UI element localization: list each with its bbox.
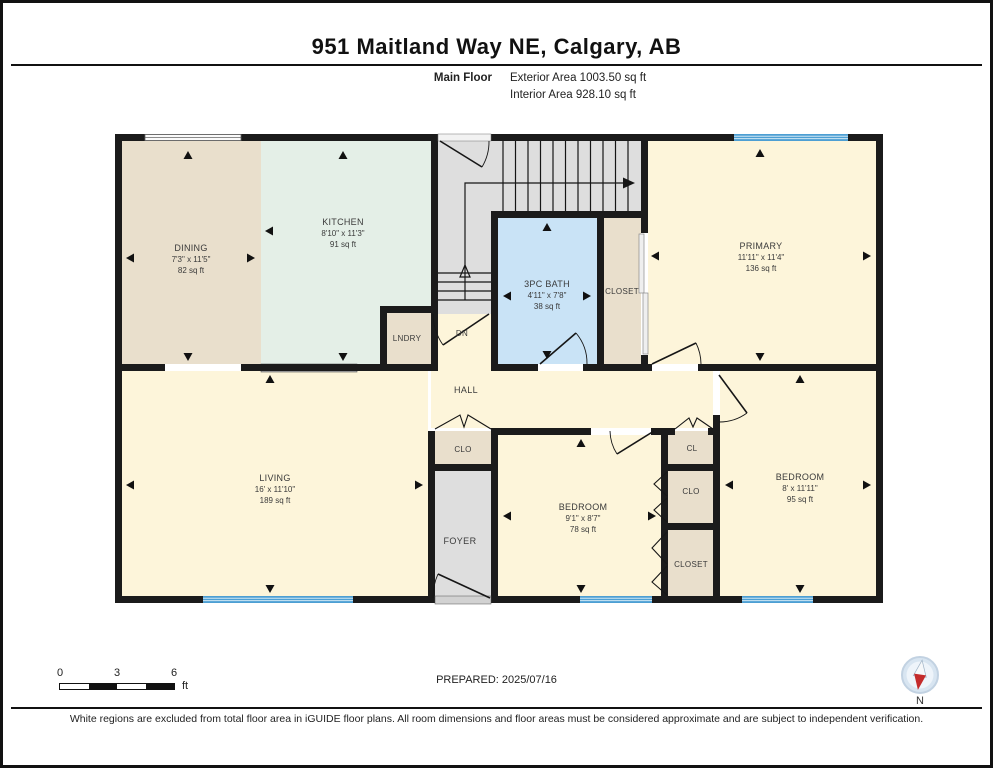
entry-door-threshold	[435, 596, 491, 604]
floorplan-page: { "header": { "title": "951 Maitland Way…	[0, 0, 993, 768]
dn-label: DN	[456, 329, 468, 338]
dining-window	[145, 135, 241, 141]
clo-right-floor	[668, 471, 713, 523]
bedroom-mid-dims: 9'1" x 8'7"	[566, 514, 601, 523]
foyer-label: FOYER	[443, 536, 476, 546]
primary-label: PRIMARY	[740, 241, 783, 251]
prepared-date: PREPARED: 2025/07/16	[3, 674, 990, 686]
living-label: LIVING	[259, 473, 290, 483]
floorplan-drawing: DINING 7'3" x 11'5" 82 sq ft KITCHEN 8'1…	[3, 3, 993, 771]
bedroom-mid-label: BEDROOM	[559, 502, 608, 512]
closet-bath-label: CLOSET	[605, 287, 639, 296]
kitchen-dims: 8'10" x 11'3"	[321, 229, 364, 238]
bedroom-mid-window	[580, 596, 652, 603]
disclaimer-text: White regions are excluded from total fl…	[3, 713, 990, 725]
lndry-label: LNDRY	[393, 334, 422, 343]
clo-foyer-label: CLO	[454, 445, 471, 454]
kitchen-label: KITCHEN	[322, 217, 364, 227]
room-living-floor	[122, 371, 428, 596]
living-window	[203, 596, 353, 603]
dining-area: 82 sq ft	[178, 266, 205, 275]
bedroom-right-label: BEDROOM	[776, 472, 825, 482]
back-door-threshold	[438, 134, 491, 141]
bedroom-right-area: 95 sq ft	[787, 495, 814, 504]
living-dims: 16' x 11'10"	[255, 485, 296, 494]
clo-right-label: CLO	[682, 487, 699, 496]
living-area: 189 sq ft	[260, 496, 291, 505]
bath-area: 38 sq ft	[534, 302, 561, 311]
hall-label: HALL	[454, 385, 478, 395]
compass: N	[896, 655, 944, 707]
primary-dims: 11'11" x 11'4"	[738, 253, 785, 262]
dining-dims: 7'3" x 11'5"	[172, 255, 211, 264]
closet-br-label: CLOSET	[674, 560, 708, 569]
hall-floor	[431, 371, 713, 428]
cl-label: CL	[687, 444, 698, 453]
kitchen-area: 91 sq ft	[330, 240, 357, 249]
bath-dims: 4'11" x 7'8"	[528, 291, 567, 300]
primary-area: 136 sq ft	[746, 264, 777, 273]
dining-label: DINING	[174, 243, 207, 253]
footer-divider	[11, 707, 982, 709]
compass-north-label: N	[896, 695, 944, 707]
bedroom-mid-area: 78 sq ft	[570, 525, 597, 534]
bath-label: 3PC BATH	[524, 279, 570, 289]
primary-window	[734, 134, 848, 141]
bedroom-right-dims: 8' x 11'11"	[782, 484, 818, 493]
bedroom-right-window	[742, 596, 813, 603]
